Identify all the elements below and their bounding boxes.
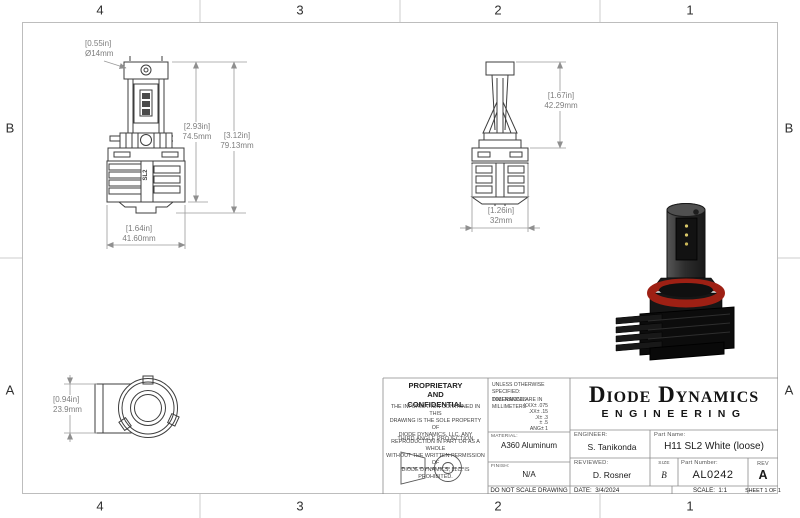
engineer-label: ENGINEER:: [574, 432, 608, 438]
third-angle-label: THIRD ANGLE PROJECTION: [385, 436, 486, 442]
rev-label: REV: [757, 461, 769, 467]
dim-line-inches: [1.26in]: [478, 206, 524, 216]
zone-label-bottom-3: 3: [296, 499, 303, 514]
reviewed-label: REVIEWED:: [574, 460, 608, 466]
product-render: [616, 204, 734, 361]
dim-label-bulb-height: [1.67in] 42.29mm: [537, 91, 585, 111]
date-cell: DATE: 3/4/2024: [574, 487, 619, 494]
zone-label-top-4: 4: [96, 3, 103, 18]
scale-value: 1:1: [718, 487, 727, 494]
part-number-value: AL0242: [693, 469, 734, 481]
zone-label-left-a: A: [6, 383, 15, 398]
proprietary-body: THE INFORMATION CONTAINED IN THIS DRAWIN…: [386, 404, 485, 481]
zone-label-right-b: B: [785, 121, 794, 136]
material-label: MATERIAL:: [491, 434, 518, 439]
size-label: SIZE: [658, 461, 669, 466]
dim-line-mm: 42.29mm: [538, 101, 584, 111]
part-number-label: Part Number:: [681, 460, 718, 466]
drawing-sheet: 4 3 2 1 4 3 2 1 B A B A [0.55in] Ø14mm […: [0, 0, 800, 518]
zone-label-left-b: B: [6, 121, 15, 136]
reviewed-value: D. Rosner: [593, 470, 631, 480]
body-logo-sl2: SL2: [143, 168, 149, 182]
finish-label: FINISH:: [491, 464, 509, 469]
part-name-value: H11 SL2 White (loose): [664, 441, 764, 452]
zone-label-bottom-1: 1: [686, 499, 693, 514]
dim-label-total-height: [3.12in] 79.13mm: [213, 131, 261, 151]
scale-cell: SCALE: 1:1: [693, 487, 727, 494]
rev-value: A: [758, 468, 767, 482]
dim-label-width: [1.64in] 41.60mm: [115, 224, 163, 244]
dim-line-mm: 41.60mm: [116, 234, 162, 244]
dim-line-inches: [0.94in]: [53, 395, 91, 405]
dim-line-mm: 23.9mm: [53, 405, 91, 415]
side-view-drawing: [472, 62, 528, 209]
dim-label-barrel-diameter: [0.94in] 23.9mm: [52, 395, 92, 415]
dim-line-inches: [3.12in]: [214, 131, 260, 141]
do-not-scale-note: DO NOT SCALE DRAWING: [490, 487, 567, 494]
dim-label-base-width: [1.26in] 32mm: [477, 206, 525, 226]
sheet-cell: SHEET 1 OF 1: [745, 488, 781, 494]
engineer-value: S. Tanikonda: [588, 442, 637, 452]
tolerance-item: ANG± 1: [498, 427, 548, 433]
date-value: 3/4/2024: [595, 487, 619, 494]
dim-line-inches: [1.64in]: [116, 224, 162, 234]
zone-label-top-2: 2: [494, 3, 501, 18]
scale-label: SCALE:: [693, 487, 715, 494]
zone-label-top-3: 3: [296, 3, 303, 18]
dim-label-diameter: [0.55in] Ø14mm: [84, 39, 114, 59]
dim-line-inches: [1.67in]: [538, 91, 584, 101]
dim-line-mm: Ø14mm: [85, 49, 113, 59]
dim-line-mm: 79.13mm: [214, 141, 260, 151]
part-name-label: Part Name:: [654, 432, 685, 438]
dim-line-inches: [0.55in]: [85, 39, 113, 49]
dim-line-mm: 32mm: [478, 216, 524, 226]
finish-value: N/A: [522, 470, 535, 479]
tolerances-list: .XXX± .075 .XX± .15 .X± .3 ± .5 ANG± 1: [498, 404, 548, 433]
rear-view-drawing: [95, 376, 179, 438]
date-label: DATE:: [574, 487, 592, 494]
zone-label-right-a: A: [785, 383, 794, 398]
zone-label-bottom-2: 2: [494, 499, 501, 514]
zone-label-bottom-4: 4: [96, 499, 103, 514]
size-value: B: [661, 470, 667, 480]
zone-label-top-1: 1: [686, 3, 693, 18]
front-view-dimensions: [104, 61, 247, 249]
material-value: A360 Aluminum: [501, 441, 557, 450]
